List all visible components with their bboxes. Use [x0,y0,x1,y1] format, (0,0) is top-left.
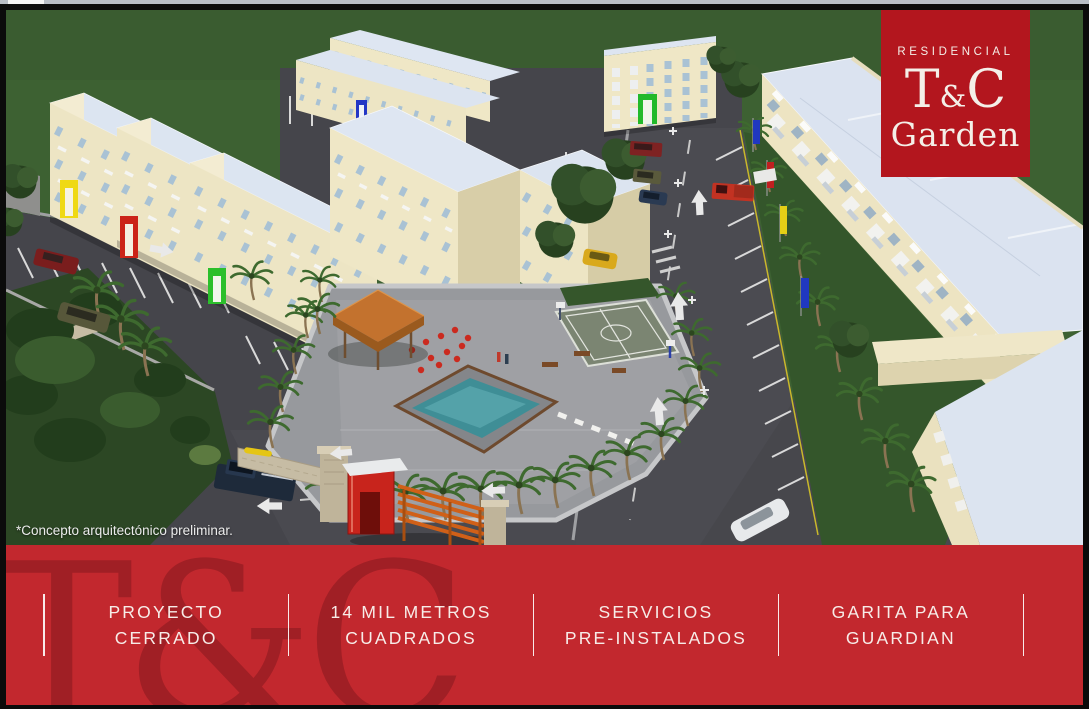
red-minivan [630,141,663,157]
feature-metros-cuadrados: 14 MIL METROS CUADRADOS [289,545,532,705]
logo-brand-line: RESIDENCIAL [881,46,1030,58]
right-apartment-block [604,36,716,137]
logo-ampersand: & [940,80,967,115]
architectural-rendering: RESIDENCIAL T&C Garden *Concepto arquite… [6,10,1083,545]
logo-badge: RESIDENCIAL T&C Garden [881,10,1030,177]
logo-name-t: T [905,60,940,120]
feature-line: GARITA PARA [779,599,1022,625]
logo-subname: Garden [881,118,1030,151]
feature-line: CERRADO [45,625,288,651]
red-truck [711,183,754,202]
feature-line: SERVICIOS [534,599,777,625]
feature-line: CUADRADOS [289,625,532,651]
feature-line: PRE-INSTALADOS [534,625,777,651]
logo-name: T&C [881,64,1030,116]
feature-servicios-preinstalados: SERVICIOS PRE-INSTALADOS [534,545,777,705]
feature-line: 14 MIL METROS [289,599,532,625]
marketing-slide: RESIDENCIAL T&C Garden *Concepto arquite… [0,0,1089,709]
person [497,352,501,362]
feature-line: GUARDIAN [779,625,1022,651]
feature-proyecto-cerrado: PROYECTO CERRADO [45,545,288,705]
feature-garita-guardian: GARITA PARA GUARDIAN [779,545,1022,705]
feature-list: PROYECTO CERRADO 14 MIL METROS CUADRADOS… [43,545,1024,705]
logo-name-c: C [966,60,1006,120]
disclaimer-caption: *Concepto arquitectónico preliminar. [16,523,233,538]
features-banner: T&C PROYECTO CERRADO 14 MIL METROS CUADR… [6,545,1083,705]
person [505,354,509,364]
slide-frame: RESIDENCIAL T&C Garden *Concepto arquite… [0,4,1089,709]
feature-line: PROYECTO [45,599,288,625]
separator [1023,594,1025,656]
